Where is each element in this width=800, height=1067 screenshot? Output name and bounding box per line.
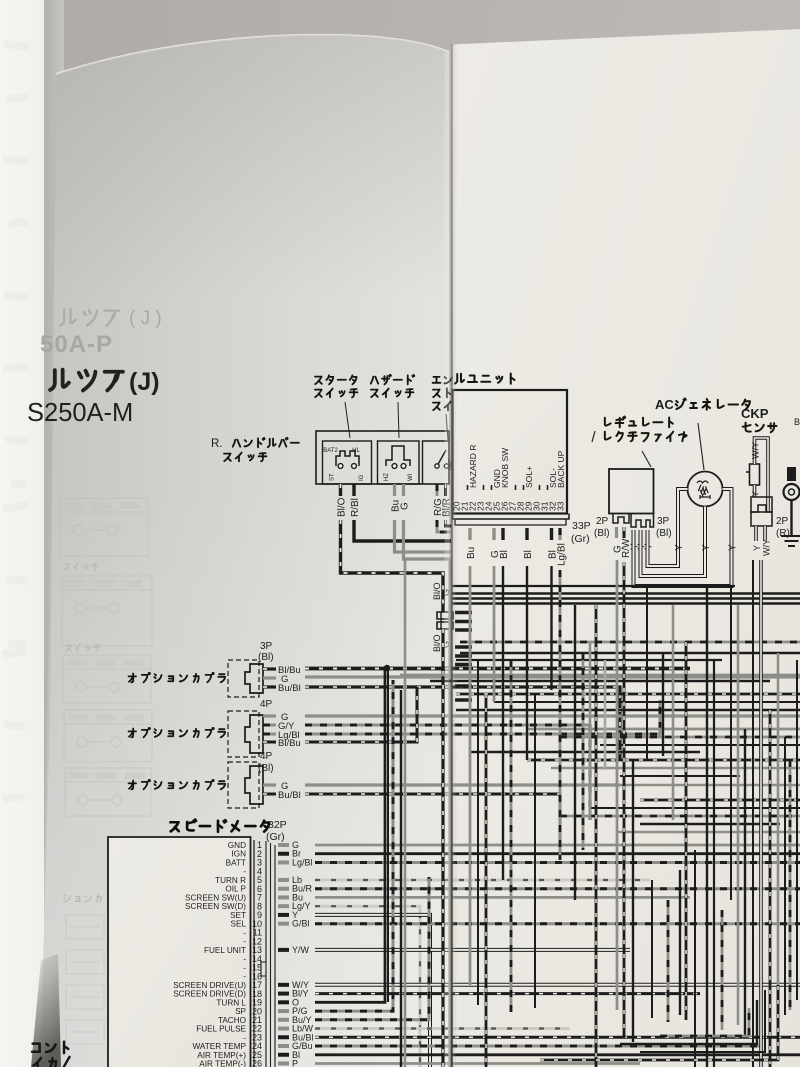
svg-text:CKP: CKP (741, 406, 769, 421)
svg-text:(Gr): (Gr) (571, 533, 590, 545)
svg-text:50A-P: 50A-P (40, 331, 113, 358)
svg-text:-: - (243, 928, 246, 937)
svg-text:SOL+: SOL+ (524, 466, 534, 488)
svg-text:3P: 3P (260, 641, 273, 652)
svg-text:-: - (243, 1033, 246, 1042)
svg-text:SEL: SEL (231, 920, 247, 929)
svg-text:AIR TEMP(+): AIR TEMP(+) (197, 1051, 246, 1060)
svg-text:Lg/Bl: Lg/Bl (557, 543, 568, 566)
svg-text:SP: SP (235, 1007, 246, 1016)
svg-text:FUEL UNIT: FUEL UNIT (204, 946, 246, 955)
svg-text:Lg/Bl: Lg/Bl (292, 857, 313, 867)
svg-text:Y/W: Y/W (292, 945, 310, 955)
svg-text:P: P (292, 1059, 298, 1067)
svg-text:Y: Y (728, 544, 739, 551)
svg-text:TACHO: TACHO (218, 1016, 246, 1025)
svg-text:AC: AC (655, 397, 674, 412)
svg-text:Bu: Bu (466, 547, 477, 559)
svg-text:SCREEN DRIVE(U): SCREEN DRIVE(U) (173, 981, 246, 990)
svg-text:R/Bl: R/Bl (350, 498, 361, 517)
svg-text:(R): (R) (776, 528, 790, 539)
svg-text:FUEL PULSE: FUEL PULSE (196, 1025, 246, 1034)
svg-text:ST: ST (330, 473, 336, 481)
svg-text:( J ): ( J ) (129, 308, 162, 329)
svg-text:(Bl): (Bl) (258, 763, 274, 774)
svg-text:SCREEN SW(D): SCREEN SW(D) (185, 902, 246, 911)
svg-text:4P: 4P (260, 751, 273, 762)
svg-text:AIR TEMP(-): AIR TEMP(-) (199, 1060, 246, 1067)
svg-text:33P: 33P (572, 520, 591, 532)
svg-text:TURN L: TURN L (216, 998, 246, 1007)
svg-text:33: 33 (556, 501, 566, 511)
svg-text:Bu/Bl: Bu/Bl (278, 683, 301, 694)
svg-text:Bl/Bu: Bl/Bu (278, 738, 301, 749)
svg-text:Y: Y (674, 544, 685, 551)
svg-text:WATER TEMP: WATER TEMP (192, 1042, 246, 1051)
svg-text:BACK UP: BACK UP (556, 450, 566, 488)
svg-text:HL: HL (352, 448, 360, 454)
svg-text:Y: Y (701, 544, 712, 551)
svg-text:-: - (243, 963, 246, 972)
svg-text:IGN: IGN (231, 850, 246, 859)
svg-text:-: - (243, 937, 246, 946)
svg-text:(Bl): (Bl) (656, 528, 672, 539)
svg-text:4P: 4P (260, 699, 273, 710)
svg-text:Bl: Bl (499, 550, 510, 559)
svg-text:(J): (J) (129, 368, 160, 396)
svg-text:(Bl): (Bl) (594, 528, 610, 539)
svg-text:WI: WI (408, 473, 414, 481)
svg-text:32P: 32P (268, 819, 287, 831)
svg-text:KNOB SW: KNOB SW (500, 448, 510, 488)
svg-text:Y: Y (752, 545, 762, 551)
svg-text:-: - (243, 867, 246, 876)
svg-text:SET: SET (230, 911, 246, 920)
svg-text:G/Bl: G/Bl (292, 919, 310, 929)
svg-text:S250A-M: S250A-M (27, 399, 133, 427)
svg-text:(Bl): (Bl) (258, 652, 274, 663)
svg-text:IG: IG (359, 474, 365, 481)
svg-text:3P: 3P (657, 516, 670, 527)
svg-text:SCREEN SW(U): SCREEN SW(U) (185, 893, 246, 902)
svg-text:Bu/Bl: Bu/Bl (278, 790, 301, 801)
svg-text:GND: GND (228, 841, 246, 850)
svg-text:26: 26 (252, 1059, 262, 1067)
svg-text:Y: Y (751, 491, 761, 497)
svg-text:Bl/O: Bl/O (337, 497, 348, 517)
svg-text:Bl: Bl (794, 417, 800, 427)
svg-text:W/Y: W/Y (762, 539, 772, 556)
svg-text:OIL P: OIL P (225, 885, 246, 894)
svg-text:Bl: Bl (523, 550, 534, 559)
svg-text:R.: R. (211, 438, 223, 450)
svg-text:-: - (243, 955, 246, 964)
svg-text:-: - (243, 972, 246, 981)
svg-text:BAT2: BAT2 (323, 448, 338, 454)
svg-text:HAZARD R: HAZARD R (468, 445, 478, 488)
svg-text:(Gr): (Gr) (266, 831, 285, 843)
svg-text:G: G (400, 502, 411, 510)
svg-text:2P: 2P (776, 516, 789, 527)
svg-text:2P: 2P (596, 516, 609, 527)
svg-text:SCREEN DRIVE(D): SCREEN DRIVE(D) (173, 990, 246, 999)
svg-text:BATT: BATT (226, 858, 246, 867)
svg-text:W/Y: W/Y (751, 442, 761, 459)
svg-text:HZ: HZ (384, 473, 390, 481)
svg-text:TURN R: TURN R (215, 876, 246, 885)
